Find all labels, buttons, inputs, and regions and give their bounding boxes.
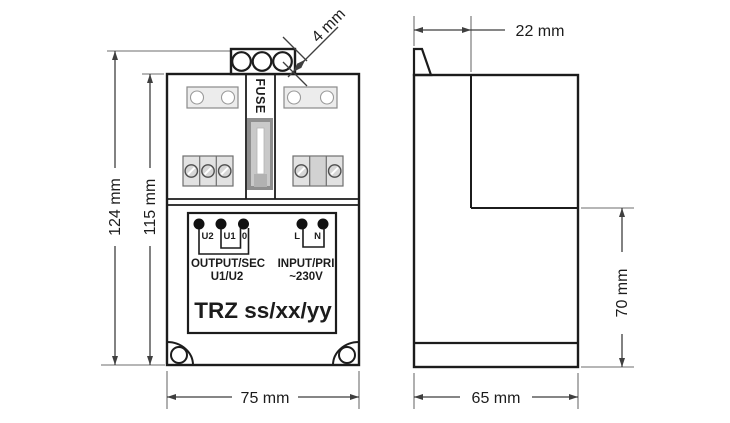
fuse-label: FUSE (253, 78, 267, 113)
mounting-hole-icon (339, 347, 355, 363)
output-sub-label: U1/U2 (211, 271, 244, 283)
body-height-dimension: 115 mm (142, 74, 164, 365)
lower-height-value: 70 mm (614, 269, 631, 318)
arrowhead-down-icon (147, 356, 153, 365)
arrowhead-right-icon (462, 27, 471, 33)
input-voltage-label: ~230V (289, 271, 323, 283)
terminal-dot-u2 (194, 219, 205, 230)
fuse-cap (254, 174, 267, 187)
model-label: TRZ ss/xx/yy (194, 298, 332, 323)
total-depth-value: 65 mm (472, 390, 521, 407)
arrowhead-up-icon (619, 208, 625, 217)
front-view: 124 mm 115 mm 4 mm (101, 6, 359, 409)
arrowhead-down-icon (112, 356, 118, 365)
plate-hole-icon (321, 91, 334, 104)
output-sec-label: OUTPUT/SEC (191, 258, 265, 270)
total-depth-dimension: 65 mm (414, 373, 578, 409)
terminal-dot-n (318, 219, 329, 230)
side-body-outline (414, 75, 578, 367)
knockout-value: 4 mm (309, 6, 349, 46)
plate-hole-icon (191, 91, 204, 104)
arrowhead-right-icon (569, 394, 578, 400)
left-cover-plate (187, 87, 238, 108)
arrowhead-up-icon (112, 51, 118, 60)
blank-cell (310, 157, 327, 185)
arrowhead-left-icon (167, 394, 176, 400)
terminal-depth-value: 22 mm (516, 23, 565, 40)
lower-height-dimension: 70 mm (581, 208, 634, 367)
body-height-value: 115 mm (142, 179, 159, 236)
side-view: 22 mm 70 mm 65 mm (414, 16, 634, 409)
terminal-label-0: 0 (242, 231, 247, 242)
top-knockout-block (231, 49, 295, 74)
technical-drawing-canvas: 124 mm 115 mm 4 mm (0, 0, 730, 423)
terminal-dot-0 (238, 219, 249, 230)
overall-height-value: 124 mm (107, 178, 124, 236)
arrowhead-down-icon (619, 358, 625, 367)
front-width-dimension: 75 mm (167, 371, 359, 409)
plate-hole-icon (288, 91, 301, 104)
plate-hole-icon (222, 91, 235, 104)
terminal-label-u1: U1 (224, 231, 237, 242)
din-clip (414, 49, 431, 75)
arrowhead-up-icon (147, 74, 153, 83)
input-pri-label: INPUT/PRI (278, 258, 335, 270)
label-panel: U2 U1 0 L N OUTPUT/SEC U1/U2 INPUT/PRI ~… (188, 213, 336, 333)
transformer-dimension-drawing: 124 mm 115 mm 4 mm (0, 0, 730, 423)
fuse-cartridge-icon (257, 128, 264, 174)
arrowhead-left-icon (414, 27, 423, 33)
arrowhead-right-icon (350, 394, 359, 400)
mounting-hole-icon (171, 347, 187, 363)
terminal-dot-u1 (216, 219, 227, 230)
fuse-holder (247, 118, 273, 190)
arrowhead-left-icon (414, 394, 423, 400)
terminal-depth-dimension: 22 mm (414, 16, 564, 72)
input-terminal-block (293, 156, 343, 186)
terminal-label-l: L (294, 231, 300, 242)
terminal-dot-l (297, 219, 308, 230)
output-terminal-block (183, 156, 233, 186)
front-width-value: 75 mm (241, 390, 290, 407)
right-cover-plate (284, 87, 337, 108)
terminal-label-n: N (314, 231, 321, 242)
terminal-label-u2: U2 (202, 231, 214, 242)
